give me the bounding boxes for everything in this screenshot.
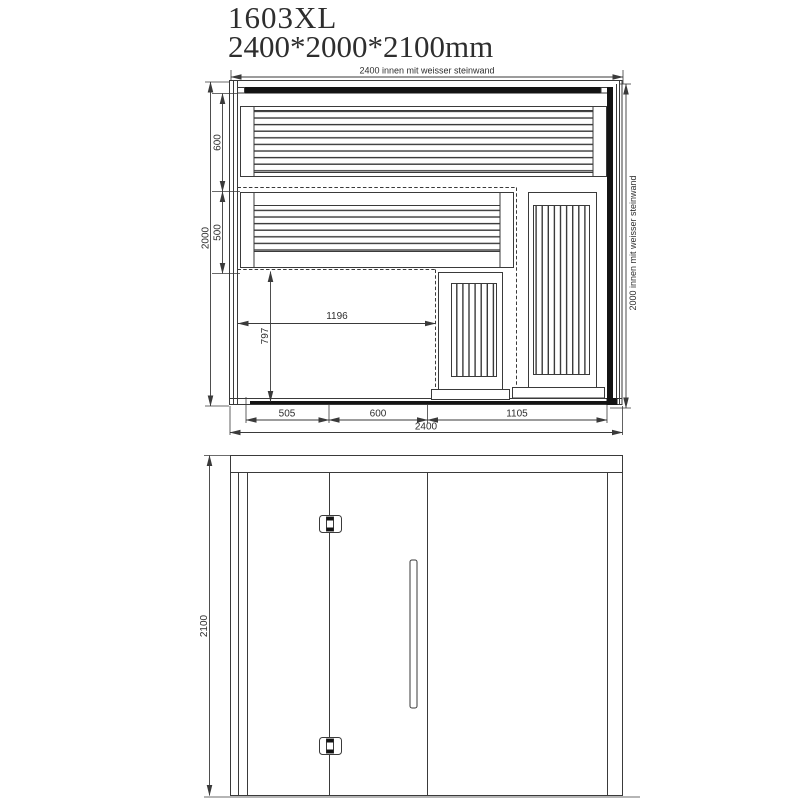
heater-small xyxy=(432,273,510,400)
dim-label-lower-bench-depth: 500 xyxy=(213,224,224,241)
dim-label-front-door: 600 xyxy=(370,409,387,420)
dim-label-top-width: 2400 innen mit weisser steinwand xyxy=(359,66,494,76)
plan-corner-post xyxy=(607,398,618,405)
dim-label-width-overall: 2400 xyxy=(415,422,438,433)
heater-small-base xyxy=(432,390,510,400)
dim-label-upper-bench-depth: 600 xyxy=(213,134,224,151)
dim-label-height-overall: 2100 xyxy=(199,614,210,637)
heater-large-slats xyxy=(534,206,590,375)
stone-wall-top-right-connector xyxy=(601,88,608,94)
door-hinge-bottom xyxy=(320,738,342,755)
heater-small-slats xyxy=(452,284,497,377)
door-hinge-top xyxy=(320,516,342,533)
upper-bench-end-cap-left xyxy=(241,107,255,177)
upper-bench-end-cap-right xyxy=(593,107,607,177)
lower-bench-slats xyxy=(254,206,500,252)
plan-front-sill xyxy=(250,401,608,404)
door-handle xyxy=(410,560,417,708)
stone-wall-top-left-connector xyxy=(238,88,245,94)
technical-drawing: 1603XL 2400*2000*2100mm xyxy=(0,0,800,800)
dim-label-floor-depth: 797 xyxy=(260,327,271,344)
dim-label-depth-inner: 2000 innen mit weisser steinwand xyxy=(628,175,638,310)
stone-wall-right xyxy=(607,87,613,398)
lower-bench xyxy=(241,193,514,268)
lower-bench-end-cap-left xyxy=(241,193,255,268)
dim-label-front-right-panel: 1105 xyxy=(506,409,528,420)
drawing-sheet: 1603XL 2400*2000*2100mm xyxy=(0,0,800,800)
heater-large-base xyxy=(513,388,605,399)
dim-label-front-left-panel: 505 xyxy=(279,409,296,420)
plan-view: 2400 innen mit weisser steinwand 2000 60… xyxy=(201,66,639,436)
elevation-outline xyxy=(231,456,623,796)
upper-bench xyxy=(241,107,607,177)
dim-label-depth-overall: 2000 xyxy=(201,226,212,249)
lower-bench-end-cap-right xyxy=(500,193,514,268)
overall-dimensions-text: 2400*2000*2100mm xyxy=(228,29,493,64)
stone-wall-top xyxy=(239,87,607,94)
dim-label-floor-width: 1196 xyxy=(326,311,348,322)
upper-bench-slats xyxy=(254,111,593,173)
title-block: 1603XL 2400*2000*2100mm xyxy=(228,0,493,64)
front-view: 2100 xyxy=(199,456,640,798)
